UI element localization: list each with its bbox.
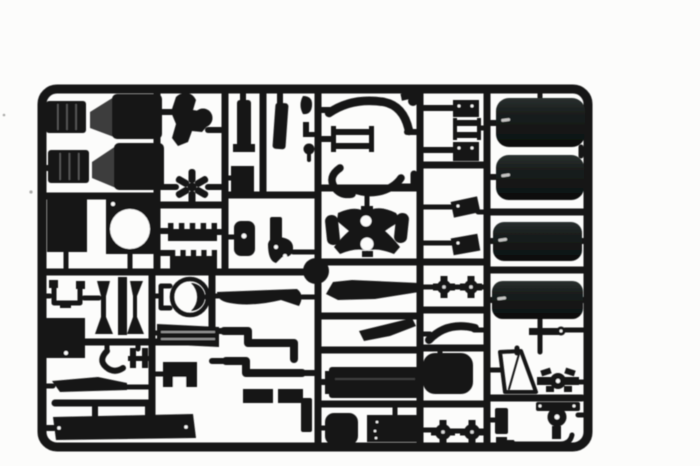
flap-rivet bbox=[457, 242, 460, 245]
wire-bracket-tip bbox=[49, 280, 58, 288]
small-panel bbox=[278, 389, 303, 403]
dust-speck bbox=[29, 190, 32, 193]
flap-rivet bbox=[457, 205, 460, 208]
pump-pulley bbox=[194, 109, 213, 128]
plate-rivet bbox=[374, 430, 377, 433]
kidney-hole bbox=[283, 254, 287, 258]
tire bbox=[492, 281, 583, 319]
front-axle-lug bbox=[564, 386, 572, 392]
plate-rivet bbox=[375, 437, 378, 440]
axle-rivet bbox=[573, 405, 576, 408]
box-rivet bbox=[458, 105, 461, 108]
dark-block bbox=[231, 166, 254, 192]
side-skirt bbox=[157, 324, 219, 347]
wire-bracket-foot bbox=[60, 302, 71, 308]
front-bumper bbox=[53, 414, 196, 440]
small-lever bbox=[303, 132, 316, 137]
radiator-frame bbox=[369, 126, 374, 152]
crossmember-tab bbox=[362, 251, 373, 257]
crossmember-hole bbox=[361, 238, 374, 251]
door-pillar bbox=[118, 277, 127, 335]
small-cap bbox=[408, 96, 418, 106]
radiator-frame bbox=[333, 143, 373, 149]
small-panel bbox=[243, 389, 273, 403]
crossmember-hole bbox=[361, 216, 372, 227]
seat-rivet bbox=[242, 234, 247, 239]
rear-axle-tail bbox=[552, 426, 561, 439]
axle-rivet bbox=[539, 405, 542, 408]
plate-rivet bbox=[376, 421, 379, 424]
link-rivet bbox=[560, 330, 563, 333]
panel-solid bbox=[43, 318, 85, 358]
box-rivet bbox=[471, 105, 474, 108]
skirt-groove bbox=[161, 331, 215, 333]
clip-part bbox=[128, 356, 150, 361]
tank-body bbox=[114, 143, 164, 190]
axle-rivet bbox=[555, 415, 560, 420]
skirt-groove bbox=[161, 338, 215, 340]
box-rivet bbox=[471, 147, 474, 150]
panel-solid bbox=[47, 199, 87, 252]
step-box-notch bbox=[173, 377, 186, 387]
gearbox-block bbox=[329, 367, 421, 398]
tire bbox=[496, 155, 584, 200]
tire bbox=[493, 222, 582, 261]
bumper-rivet bbox=[57, 426, 61, 430]
step-ladder bbox=[477, 118, 481, 140]
radiator-frame bbox=[331, 126, 336, 152]
air-tank bbox=[325, 413, 358, 445]
runner-junction-dot bbox=[303, 258, 329, 284]
tank-end-cap bbox=[48, 150, 89, 183]
panel-rivet bbox=[111, 202, 115, 206]
fuel-tank bbox=[423, 353, 473, 394]
step-ladder bbox=[453, 118, 457, 140]
seat-cushion bbox=[234, 221, 255, 256]
dust-speck bbox=[3, 114, 6, 117]
post-bar bbox=[301, 398, 312, 432]
kidney-hole bbox=[274, 245, 278, 249]
wire-bracket-tip bbox=[76, 281, 85, 289]
gearbox-groove bbox=[335, 378, 415, 380]
panel-hole bbox=[110, 209, 150, 249]
exhaust-stack bbox=[237, 100, 251, 148]
tank-end-cap bbox=[46, 101, 86, 133]
bumper-rivet bbox=[184, 425, 188, 429]
sprue bbox=[0, 0, 700, 466]
crossmember-tab bbox=[361, 206, 373, 213]
front-axle-lug bbox=[546, 386, 554, 392]
battery-box bbox=[453, 142, 479, 161]
panel-rivet bbox=[64, 351, 68, 355]
axle-rivet bbox=[556, 379, 560, 383]
radiator-frame bbox=[333, 129, 373, 135]
exhaust-stack-foot bbox=[233, 144, 255, 152]
tank-body bbox=[112, 94, 162, 139]
gearbox-cap bbox=[325, 371, 331, 394]
photo-of-model-kit-sprue bbox=[0, 0, 700, 466]
tie-rod-end bbox=[505, 440, 514, 448]
box-rivet bbox=[458, 147, 461, 150]
tire bbox=[496, 98, 585, 147]
battery-box bbox=[453, 100, 479, 117]
small-cap bbox=[304, 144, 315, 155]
small-plate bbox=[495, 408, 508, 434]
